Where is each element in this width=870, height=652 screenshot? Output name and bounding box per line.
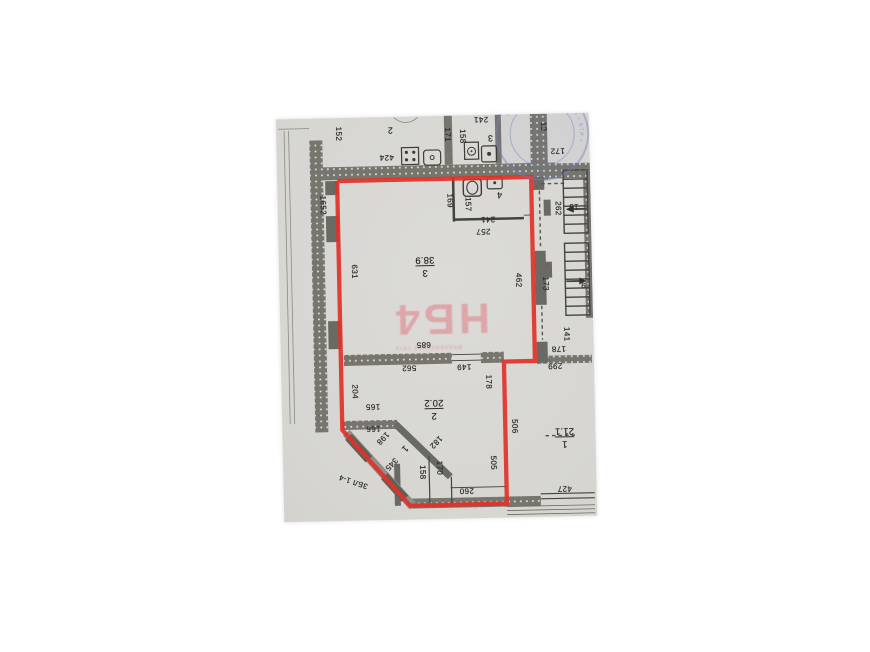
- dim-label: 171: [443, 127, 451, 142]
- dim-label: 141: [562, 327, 570, 342]
- dim-label: 505: [489, 455, 497, 470]
- dim-label: 4: [497, 190, 503, 199]
- room-area-label: 338.9: [415, 255, 435, 277]
- dim-label: 158: [458, 129, 466, 144]
- dim-label: 173: [541, 276, 549, 291]
- dim-label: 172: [550, 146, 565, 154]
- floorplan-paper: МОСКОВСКОЙ ОБЛАСТИ • БТИ • НБ4 федеральн…: [276, 113, 597, 522]
- dim-label: 158: [418, 465, 426, 480]
- dim-label: 15: [569, 202, 579, 210]
- dim-label: 631: [350, 264, 358, 279]
- dim-label: 149: [457, 362, 472, 370]
- dim-label: 3: [487, 133, 493, 142]
- dim-label: 9: [581, 281, 586, 289]
- dim-label: 2: [387, 125, 393, 134]
- dim-label: 157: [463, 197, 471, 212]
- watermark-logo: НБ4: [392, 292, 491, 343]
- dim-label: 424: [379, 153, 394, 161]
- dim-label: 169: [445, 193, 453, 208]
- dim-label: 257: [476, 227, 491, 235]
- room-area-label: 220.2: [424, 398, 444, 420]
- dim-label: 427: [557, 484, 572, 492]
- dim-label: 241: [481, 215, 496, 223]
- washbasin-icon: [464, 142, 478, 159]
- dim-label: 299: [548, 361, 563, 369]
- dim-label: 462: [514, 273, 522, 288]
- dashed-openings: [539, 183, 575, 436]
- bath-icon: [481, 146, 496, 162]
- toilet-icon: [463, 179, 481, 196]
- dim-label: 166: [366, 424, 381, 432]
- dim-label: 262: [554, 201, 562, 216]
- dim-label: 260: [459, 486, 474, 494]
- dim-label: 204: [350, 384, 358, 399]
- dim-label: 152: [334, 127, 342, 142]
- dim-label: 506: [510, 419, 518, 434]
- floorplan-photo: МОСКОВСКОЙ ОБЛАСТИ • БТИ • НБ4 федеральн…: [0, 0, 870, 652]
- dim-label: 178: [484, 375, 492, 390]
- dim-label: 1652: [318, 196, 326, 216]
- dim-label: 12: [539, 122, 547, 132]
- dim-label: 562: [402, 363, 417, 371]
- dim-label: 685: [416, 340, 431, 348]
- dim-label: 178: [551, 344, 566, 352]
- kitchen-sink-icon: [423, 150, 440, 165]
- room-area-label: 121.1: [555, 426, 575, 448]
- stove-icon: [401, 147, 418, 164]
- dim-label: 165: [365, 402, 380, 410]
- dim-label: 170: [435, 461, 443, 476]
- dim-label: 241: [473, 115, 488, 123]
